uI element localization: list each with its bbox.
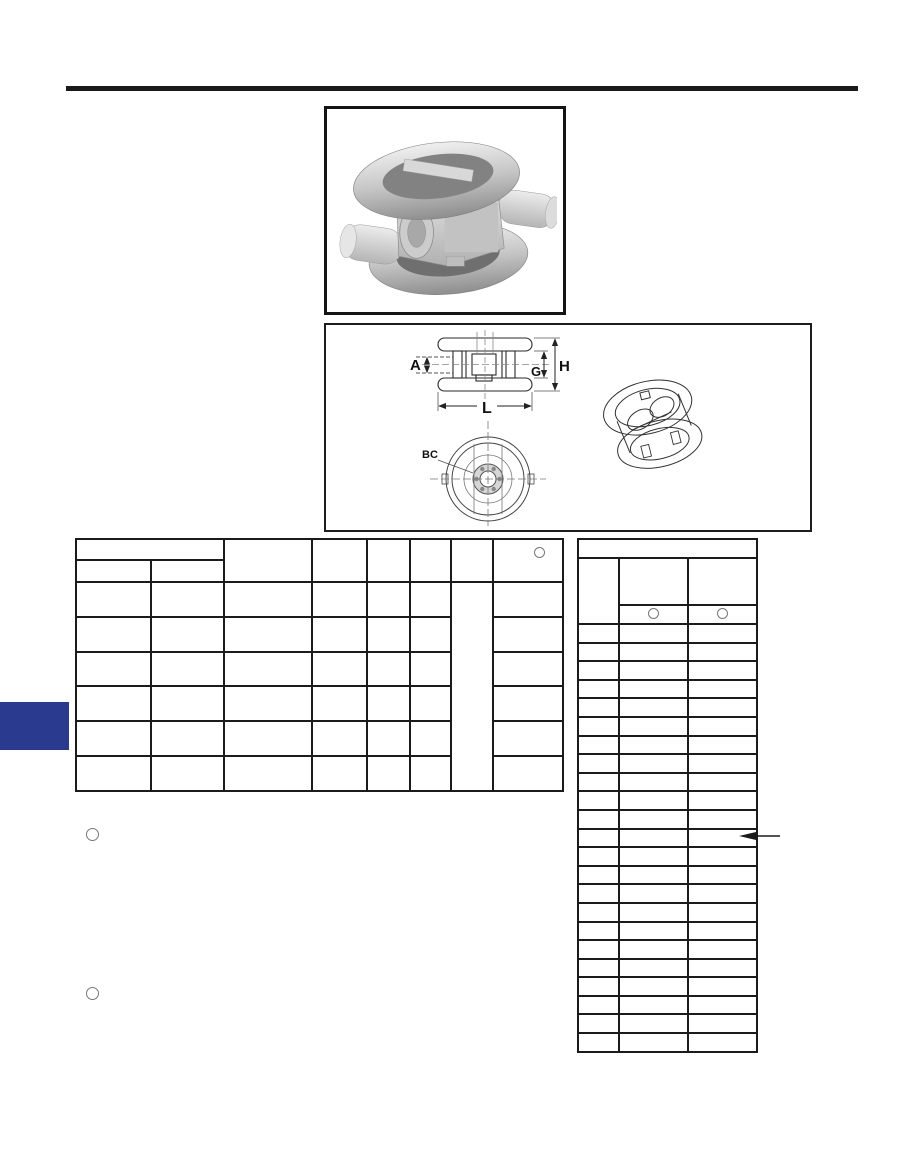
- specs-table-cell: [619, 940, 688, 959]
- specs-table-cell: [619, 661, 688, 680]
- footnote-circle-icon: [534, 547, 545, 558]
- dimensions-table-cell: [76, 686, 151, 721]
- specs-table-cell: [619, 884, 688, 903]
- dimensions-table-row: [76, 582, 563, 617]
- specs-table-cell: [619, 680, 688, 699]
- header-cell: [451, 539, 493, 582]
- dimensions-table-cell: [367, 617, 410, 652]
- footnote-circle-icon: [86, 987, 99, 1000]
- specs-table-row: [578, 791, 757, 810]
- specs-table-row: [578, 884, 757, 903]
- specs-table-cell: [688, 736, 757, 755]
- specs-table-cell: [578, 661, 619, 680]
- dimensions-table-cell: [76, 652, 151, 687]
- header-cell-with-note: [493, 539, 563, 582]
- dimensions-table-cell: [151, 721, 224, 756]
- specs-table-cell: [578, 866, 619, 885]
- specs-table-row: [578, 922, 757, 941]
- dimensions-table-cell: [312, 721, 367, 756]
- specs-table-cell: [619, 1014, 688, 1033]
- specs-table-cell: [578, 903, 619, 922]
- page-top-rule: [66, 86, 858, 91]
- specs-table-row: [578, 680, 757, 699]
- header-sub-cell: [151, 560, 224, 582]
- specs-table-row: [578, 903, 757, 922]
- dimension-drawing: A G H L: [326, 325, 806, 526]
- dimensions-table-cell: [410, 582, 451, 617]
- dimensions-table-cell: [493, 756, 563, 791]
- specs-table-cell: [619, 643, 688, 662]
- specs-note-cell: [688, 605, 757, 624]
- specs-table-cell: [578, 847, 619, 866]
- dimensions-table-cell: [312, 652, 367, 687]
- specs-table-cell: [619, 977, 688, 996]
- specs-table-cell: [619, 773, 688, 792]
- specs-table-cell: [688, 680, 757, 699]
- specs-table-body: [578, 624, 757, 1052]
- dimensions-table-header-row-1: [76, 539, 563, 560]
- dimensions-table-cell: [367, 721, 410, 756]
- dimensions-table-cell: [367, 582, 410, 617]
- footnote-circle-icon: [648, 608, 659, 619]
- specs-table-cell: [619, 1033, 688, 1052]
- dim-G-H: G H: [531, 338, 570, 391]
- specs-table-cell: [619, 847, 688, 866]
- specs-table-cell: [578, 996, 619, 1015]
- dim-A: A: [410, 357, 453, 374]
- specs-table-cell: [578, 810, 619, 829]
- footnote-circle-icon: [717, 608, 728, 619]
- specs-table-cell: [578, 922, 619, 941]
- dimensions-table-cell: [410, 756, 451, 791]
- specs-table-cell: [578, 959, 619, 978]
- specs-table-cell: [578, 940, 619, 959]
- header-group-cell: [76, 539, 224, 560]
- specs-header-cell: [619, 558, 688, 605]
- specs-table-cell: [578, 624, 619, 643]
- specs-header-cell: [688, 558, 757, 605]
- specs-table-row: [578, 698, 757, 717]
- product-photo-frame: [324, 106, 566, 315]
- specs-table-cell: [688, 624, 757, 643]
- specs-table-cell: [619, 717, 688, 736]
- specs-table-row: [578, 959, 757, 978]
- dimensions-table-cell: [76, 756, 151, 791]
- specs-table-cell: [619, 736, 688, 755]
- specs-table-cell: [578, 754, 619, 773]
- isometric-view: [598, 371, 707, 477]
- header-sub-cell: [76, 560, 151, 582]
- dimensions-table-cell: [451, 582, 493, 791]
- row-pointer-arrow-icon: [735, 828, 785, 844]
- dimensions-table-cell: [410, 652, 451, 687]
- dimensions-table-cell: [312, 756, 367, 791]
- dimensions-table-cell: [76, 582, 151, 617]
- specs-table-cell: [578, 717, 619, 736]
- dimensions-table-cell: [224, 617, 312, 652]
- specs-table-title-row: [578, 539, 757, 558]
- specs-table-cell: [688, 1014, 757, 1033]
- specs-header-cell: [578, 558, 619, 624]
- dimension-drawing-frame: A G H L: [324, 323, 812, 532]
- dimensions-table-cell: [76, 617, 151, 652]
- dimensions-table-cell: [493, 652, 563, 687]
- specs-table-cell: [688, 940, 757, 959]
- dimensions-table-cell: [493, 686, 563, 721]
- specs-table-row: [578, 661, 757, 680]
- specs-table-row: [578, 996, 757, 1015]
- specs-table-cell: [619, 866, 688, 885]
- specs-table-row: [578, 754, 757, 773]
- specs-table-row: [578, 624, 757, 643]
- specs-table-row: [578, 829, 757, 848]
- dimensions-table-cell: [410, 721, 451, 756]
- specs-table-cell: [688, 661, 757, 680]
- dimensions-table-cell: [493, 617, 563, 652]
- dimensions-table-cell: [312, 582, 367, 617]
- specs-table-row: [578, 717, 757, 736]
- specs-table-cell: [578, 643, 619, 662]
- left-pipe-stub: [338, 222, 405, 266]
- dimensions-table-cell: [224, 756, 312, 791]
- dimensions-table-cell: [151, 582, 224, 617]
- specs-table-cell: [688, 773, 757, 792]
- dimensions-table-cell: [76, 721, 151, 756]
- specs-table-cell: [619, 624, 688, 643]
- specs-table-header-row: [578, 558, 757, 605]
- specs-table-cell: [688, 996, 757, 1015]
- specs-table-cell: [688, 922, 757, 941]
- specs-table-row: [578, 866, 757, 885]
- dimensions-table-cell: [151, 652, 224, 687]
- specs-table-cell: [688, 884, 757, 903]
- dim-label-A: A: [410, 357, 421, 374]
- section-tab: [0, 702, 69, 750]
- specs-table-cell: [619, 754, 688, 773]
- specs-table-cell: [578, 680, 619, 699]
- specs-table-cell: [688, 810, 757, 829]
- specs-table-row: [578, 940, 757, 959]
- specs-table-cell: [688, 959, 757, 978]
- dimensions-table: [75, 538, 564, 792]
- dimensions-table-cell: [224, 582, 312, 617]
- specs-table-title-cell: [578, 539, 757, 558]
- dimensions-table-cell: [410, 686, 451, 721]
- specs-table-row: [578, 1014, 757, 1033]
- specs-table-row: [578, 847, 757, 866]
- dim-label-BC: BC: [422, 449, 438, 461]
- dimensions-table-cell: [493, 721, 563, 756]
- dim-label-L: L: [482, 400, 492, 417]
- dimensions-table-cell: [312, 617, 367, 652]
- dim-label-H: H: [559, 358, 570, 375]
- specs-table-cell: [619, 996, 688, 1015]
- specs-table-cell: [619, 698, 688, 717]
- catalog-page: { "page": { "type": "product-catalog-sca…: [0, 0, 905, 1175]
- dimensions-table-cell: [151, 756, 224, 791]
- specs-table-row: [578, 810, 757, 829]
- dimensions-table-body: [76, 582, 563, 791]
- dimensions-table-cell: [224, 721, 312, 756]
- specs-table-cell: [619, 791, 688, 810]
- specs-table-cell: [578, 736, 619, 755]
- dimensions-table-cell: [367, 756, 410, 791]
- specs-table-cell: [578, 791, 619, 810]
- specs-table-cell: [688, 791, 757, 810]
- specs-table-cell: [688, 717, 757, 736]
- dimensions-table-cell: [224, 652, 312, 687]
- specs-table-cell: [619, 922, 688, 941]
- footnote-2: [86, 987, 99, 1005]
- header-cell: [312, 539, 367, 582]
- dimensions-table-cell: [367, 686, 410, 721]
- specs-table-cell: [578, 884, 619, 903]
- specs-table-cell: [688, 977, 757, 996]
- specs-table-cell: [578, 1014, 619, 1033]
- footnote-circle-icon: [86, 828, 99, 841]
- header-cell: [224, 539, 312, 582]
- specs-table-cell: [619, 903, 688, 922]
- specs-table-cell: [578, 977, 619, 996]
- specs-table-cell: [688, 754, 757, 773]
- specs-table-cell: [619, 959, 688, 978]
- dimensions-table-cell: [312, 686, 367, 721]
- header-cell: [410, 539, 451, 582]
- specs-table-cell: [688, 866, 757, 885]
- specs-table-row: [578, 977, 757, 996]
- dimensions-table-cell: [493, 582, 563, 617]
- dimensions-table-cell: [151, 686, 224, 721]
- specs-table-cell: [688, 847, 757, 866]
- dimensions-table-cell: [224, 686, 312, 721]
- dim-label-G: G: [531, 364, 541, 379]
- specs-table-cell: [619, 829, 688, 848]
- specs-table-row: [578, 773, 757, 792]
- footnote-1: [86, 828, 99, 846]
- dimensions-table-cell: [410, 617, 451, 652]
- specs-table-row: [578, 643, 757, 662]
- specs-table-cell: [688, 1033, 757, 1052]
- dimensions-table-cell: [367, 652, 410, 687]
- dimensions-table-cell: [151, 617, 224, 652]
- specs-table-cell: [578, 698, 619, 717]
- specs-table-row: [578, 1033, 757, 1052]
- specs-table-cell: [578, 1033, 619, 1052]
- specs-table-cell: [688, 698, 757, 717]
- specs-table-cell: [578, 829, 619, 848]
- header-cell: [367, 539, 410, 582]
- product-photo-valve-rendering: [327, 109, 557, 306]
- specs-table-cell: [578, 773, 619, 792]
- specs-table-row: [578, 736, 757, 755]
- specs-table: [577, 538, 758, 1053]
- specs-note-cell: [619, 605, 688, 624]
- specs-table-cell: [619, 810, 688, 829]
- specs-table-cell: [688, 903, 757, 922]
- specs-table-cell: [688, 643, 757, 662]
